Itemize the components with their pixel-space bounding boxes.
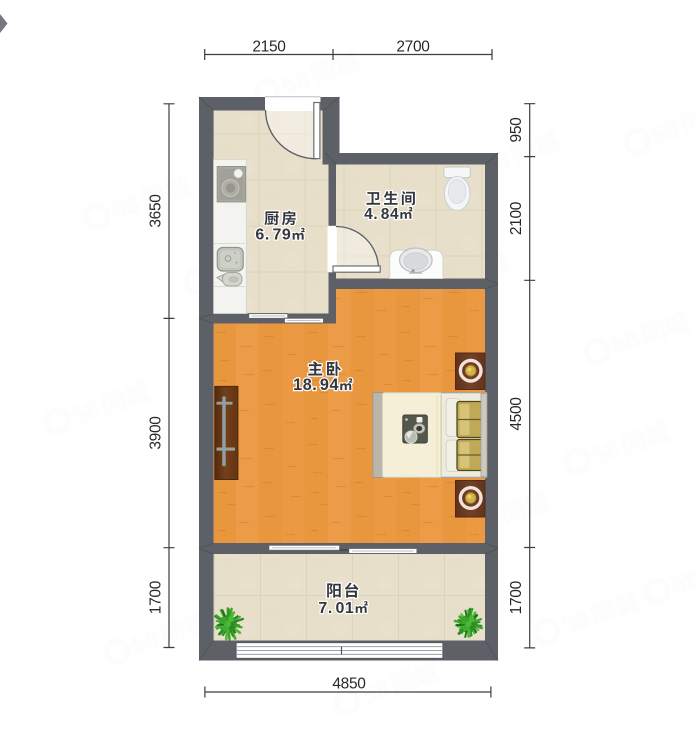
svg-text:1700: 1700	[508, 580, 525, 614]
svg-text:2150: 2150	[252, 39, 286, 56]
svg-text:7.01: 7.01	[318, 600, 354, 617]
svg-text:4850: 4850	[332, 676, 366, 693]
svg-text:2700: 2700	[396, 39, 430, 56]
svg-text:18.94: 18.94	[293, 376, 339, 394]
svg-text:1700: 1700	[148, 580, 165, 614]
svg-text:3900: 3900	[148, 416, 165, 450]
svg-text:950: 950	[508, 117, 525, 143]
svg-text:6.79: 6.79	[255, 227, 291, 244]
svg-text:3650: 3650	[148, 194, 165, 228]
svg-text:4500: 4500	[508, 397, 525, 431]
svg-text:4.84: 4.84	[364, 206, 399, 223]
svg-text:2100: 2100	[508, 201, 525, 235]
